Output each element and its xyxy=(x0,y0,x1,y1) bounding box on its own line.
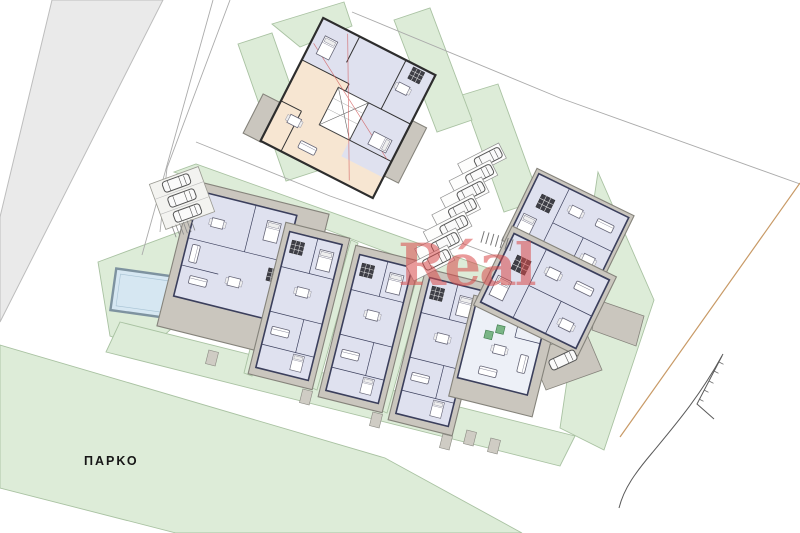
park-label: ΠΑΡΚΟ xyxy=(84,454,139,468)
retaining-wall-hatch xyxy=(699,362,724,401)
watermark-text: Réal xyxy=(398,231,536,299)
retaining-wall-line xyxy=(697,356,722,419)
site-plan-canvas: Réal ΠΑΡΚΟ xyxy=(0,0,800,533)
boundary-curve xyxy=(619,354,723,508)
site-plan: Réal ΠΑΡΚΟ xyxy=(0,0,800,533)
